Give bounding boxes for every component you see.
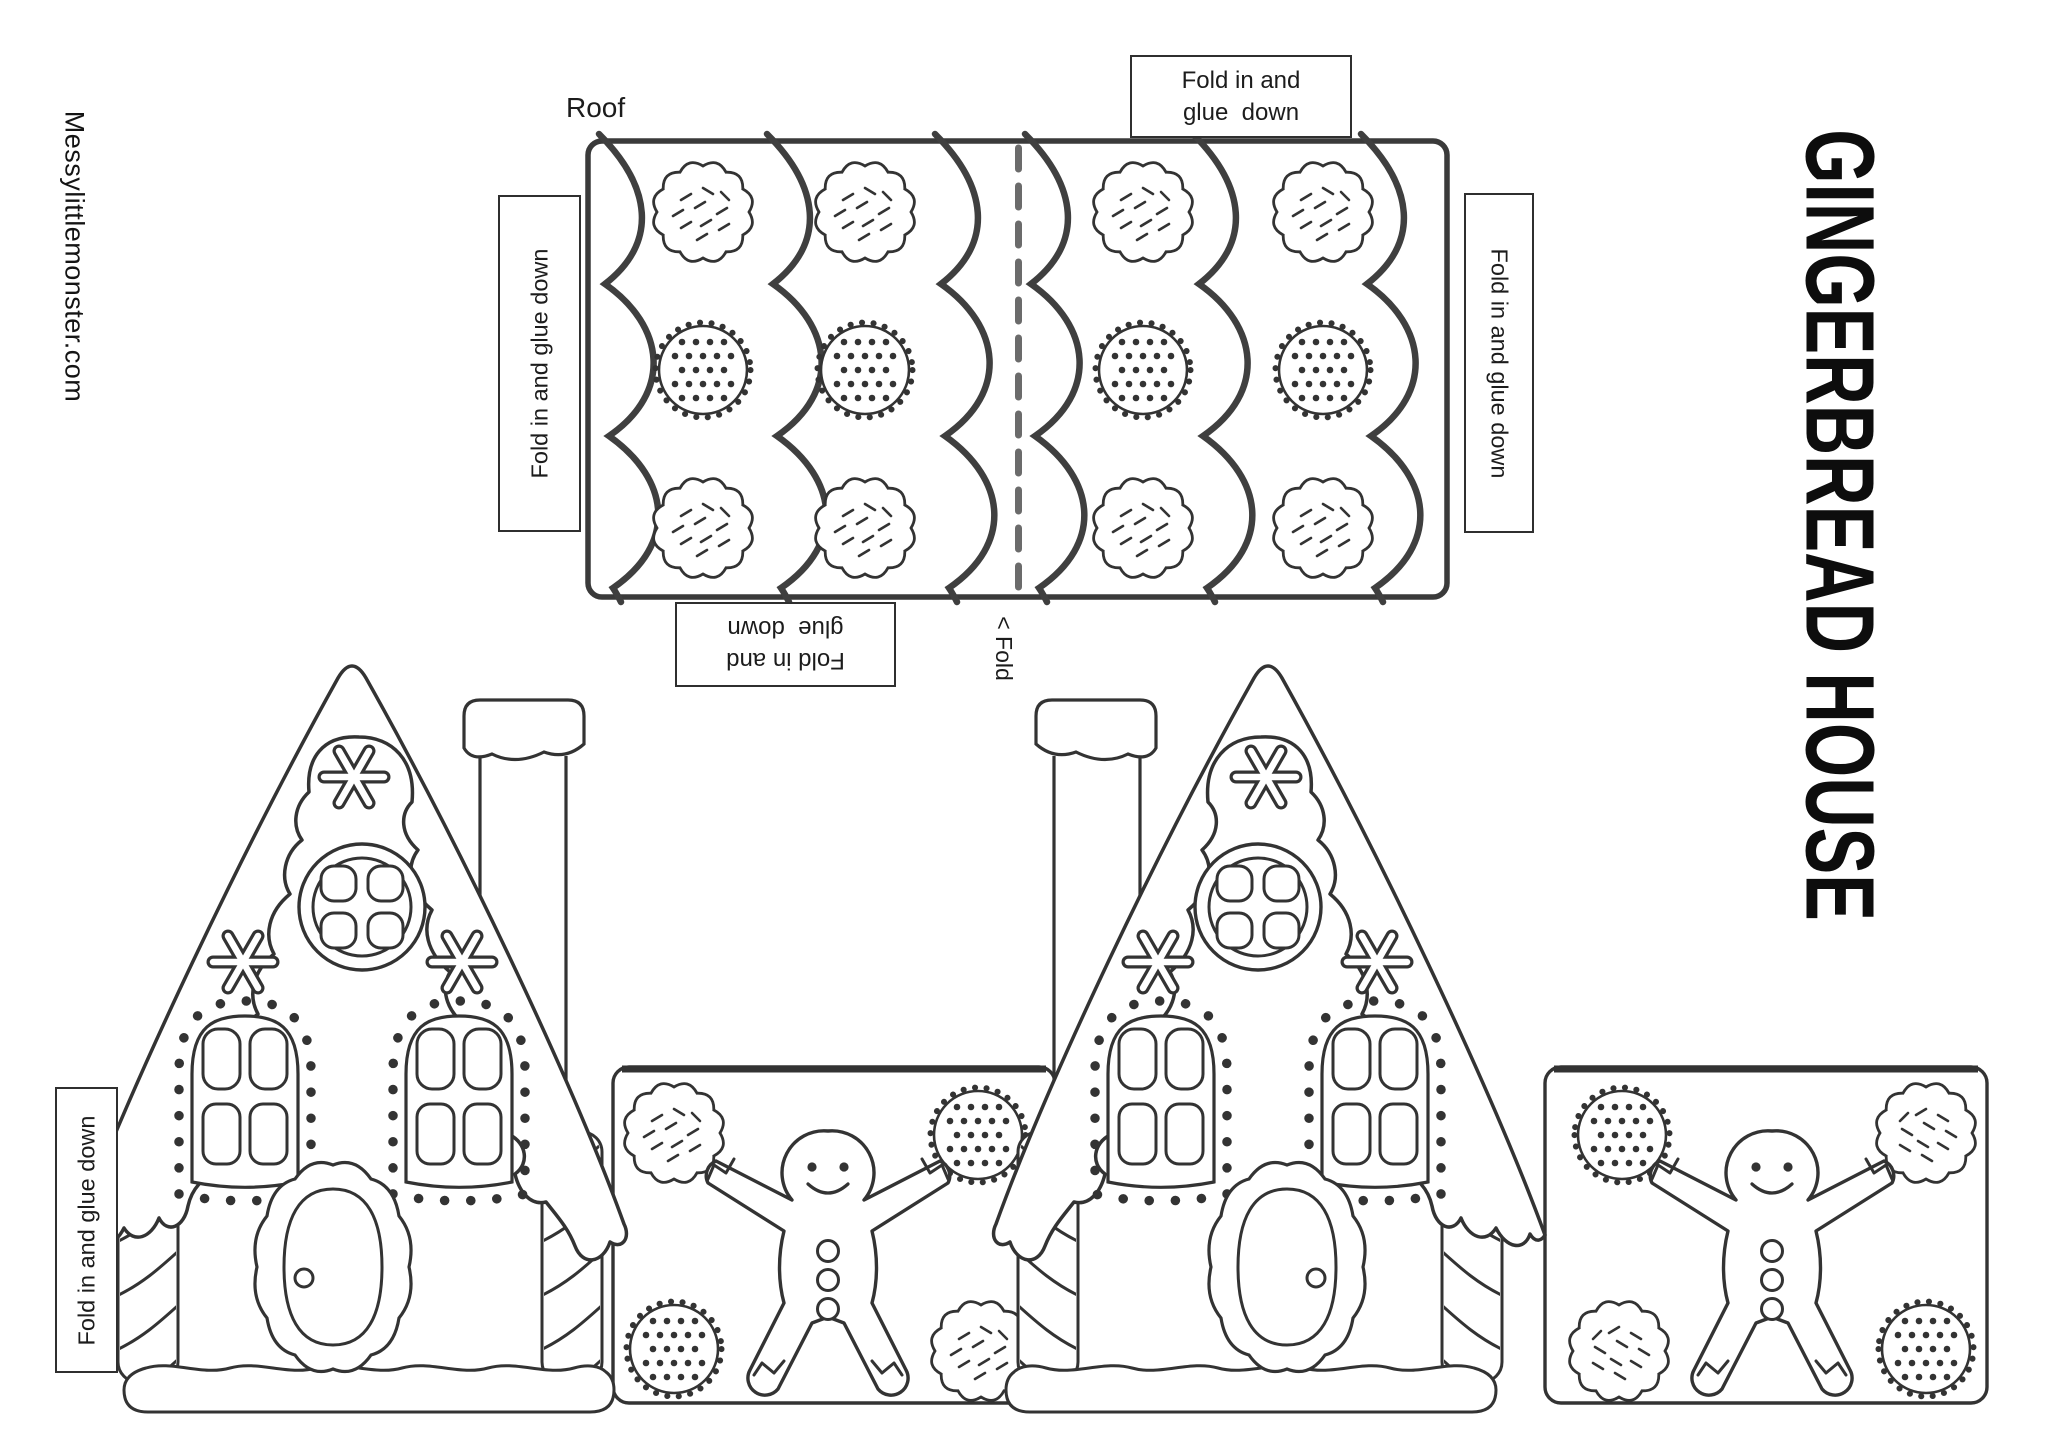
- gingerbread-house-front: [75, 666, 626, 1412]
- fold-flap-bottom-line1: Fold in and: [726, 645, 845, 676]
- fold-flap-roof-left: Fold in and glue down: [498, 195, 581, 532]
- brand-text: Messylittlemonster.com: [59, 110, 90, 402]
- fold-flap-roof-right: Fold in and glue down: [1464, 193, 1534, 533]
- gingerbread-house-back: [994, 666, 1545, 1412]
- template-drawing: [0, 0, 2048, 1449]
- fold-flap-house-left: Fold in and glue down: [55, 1087, 118, 1373]
- fold-flap-top-line2: glue down: [1182, 97, 1301, 128]
- fold-line-marker: < Fold: [982, 600, 1024, 696]
- page-title: GINGERBREAD HOUSE: [1788, 172, 1892, 878]
- brand-watermark: Messylittlemonster.com: [48, 66, 100, 446]
- roof-section-label: Roof: [566, 90, 666, 126]
- fold-flap-bottom-line2: glue down: [726, 613, 845, 644]
- fold-flap-top: Fold in and glue down: [1130, 55, 1352, 138]
- fold-flap-top-line1: Fold in and: [1182, 65, 1301, 96]
- worksheet-page: Messylittlemonster.com Roof Fold in and …: [0, 0, 2048, 1449]
- side-wall-panel-left: [613, 1067, 1055, 1403]
- fold-flap-roof-bottom: Fold in and glue down: [675, 602, 896, 687]
- side-wall-panel-right: [1545, 1067, 1987, 1403]
- roof-panel-drawing: [588, 134, 1447, 602]
